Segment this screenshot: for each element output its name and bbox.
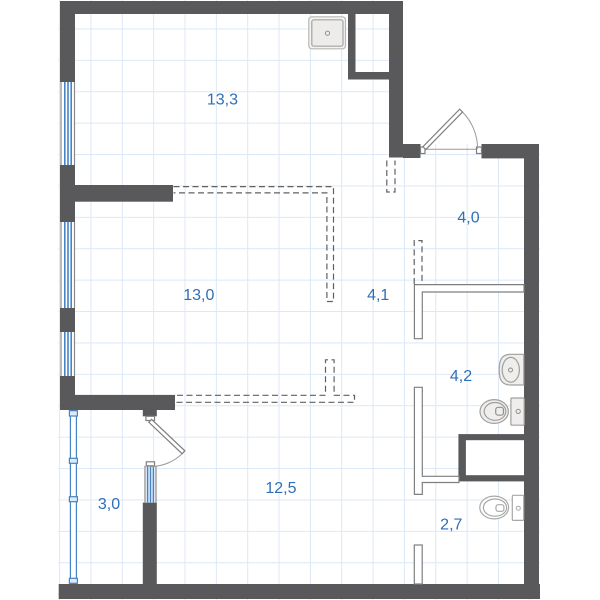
svg-text:13,3: 13,3 (207, 92, 238, 109)
svg-text:2,7: 2,7 (440, 517, 462, 534)
svg-text:4,0: 4,0 (457, 209, 479, 226)
svg-text:4,1: 4,1 (367, 287, 389, 304)
svg-text:4,2: 4,2 (450, 368, 472, 385)
svg-text:13,0: 13,0 (183, 287, 214, 304)
svg-text:3,0: 3,0 (98, 496, 120, 513)
svg-text:12,5: 12,5 (265, 480, 296, 497)
